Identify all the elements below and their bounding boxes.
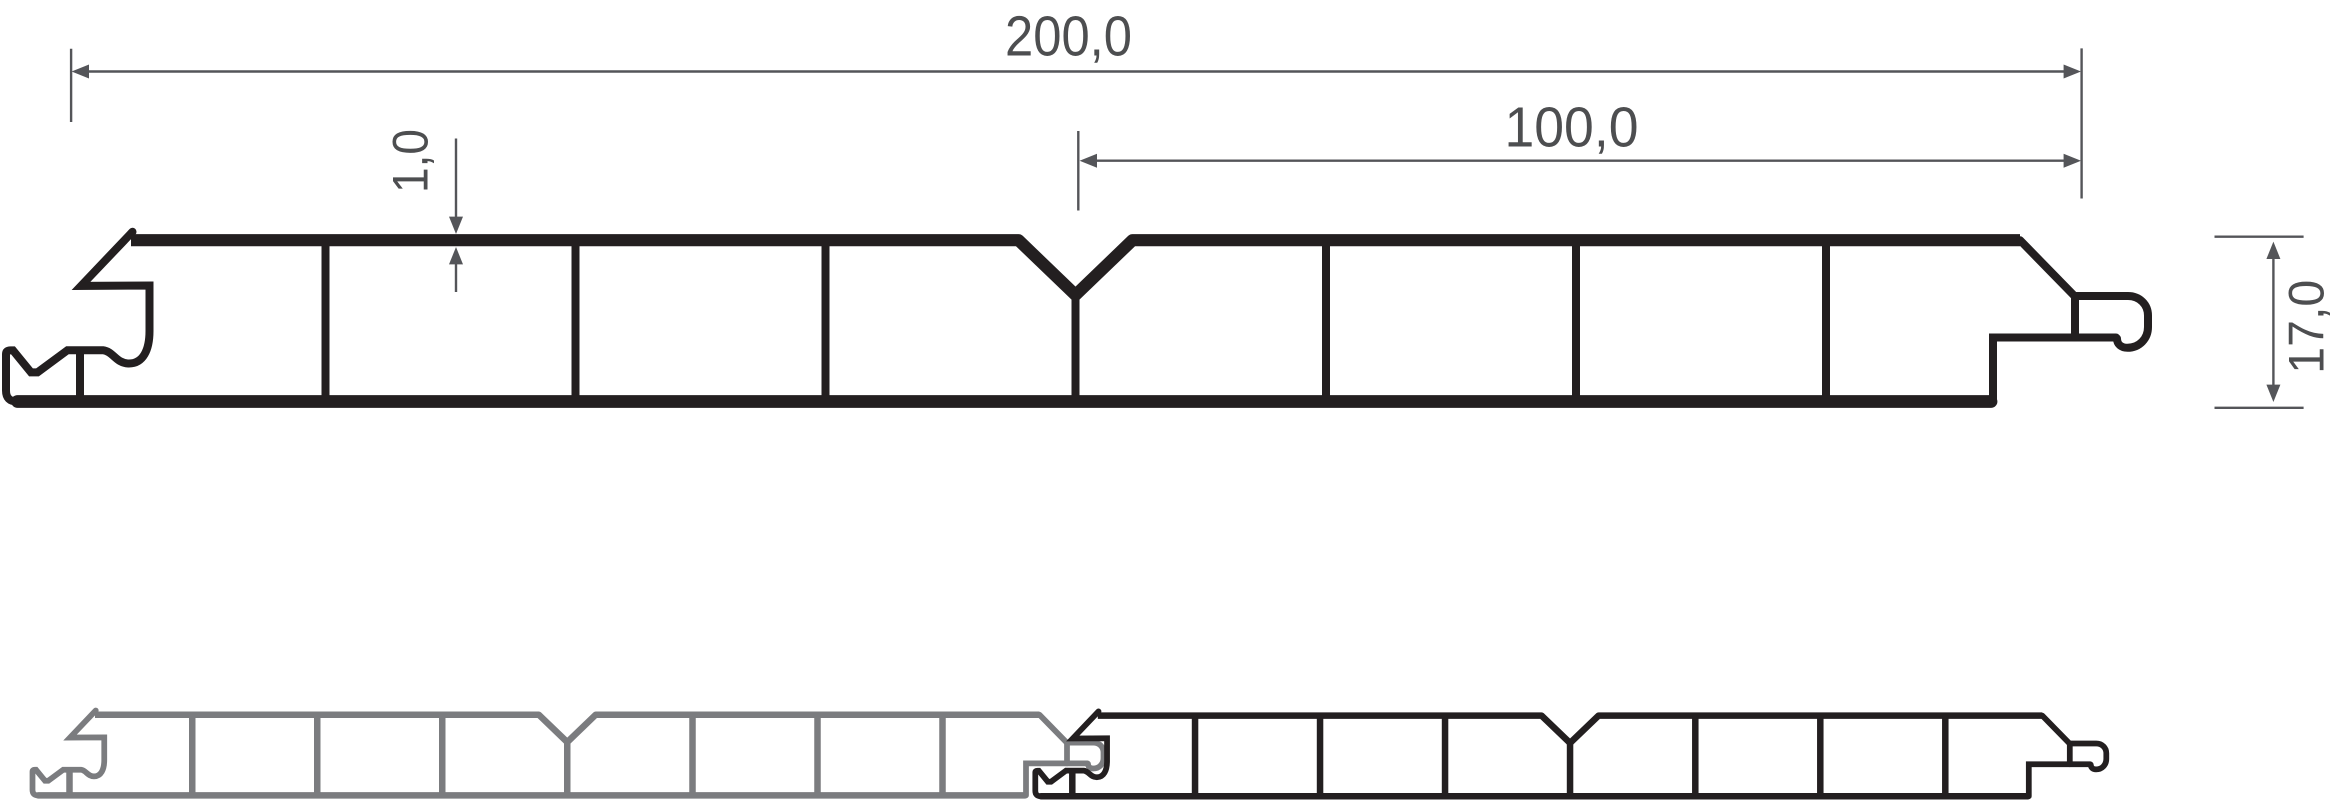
svg-text:1,0: 1,0 <box>383 129 439 193</box>
svg-text:17,0: 17,0 <box>2279 280 2335 374</box>
svg-text:200,0: 200,0 <box>1005 5 1132 69</box>
svg-text:100,0: 100,0 <box>1505 96 1639 160</box>
